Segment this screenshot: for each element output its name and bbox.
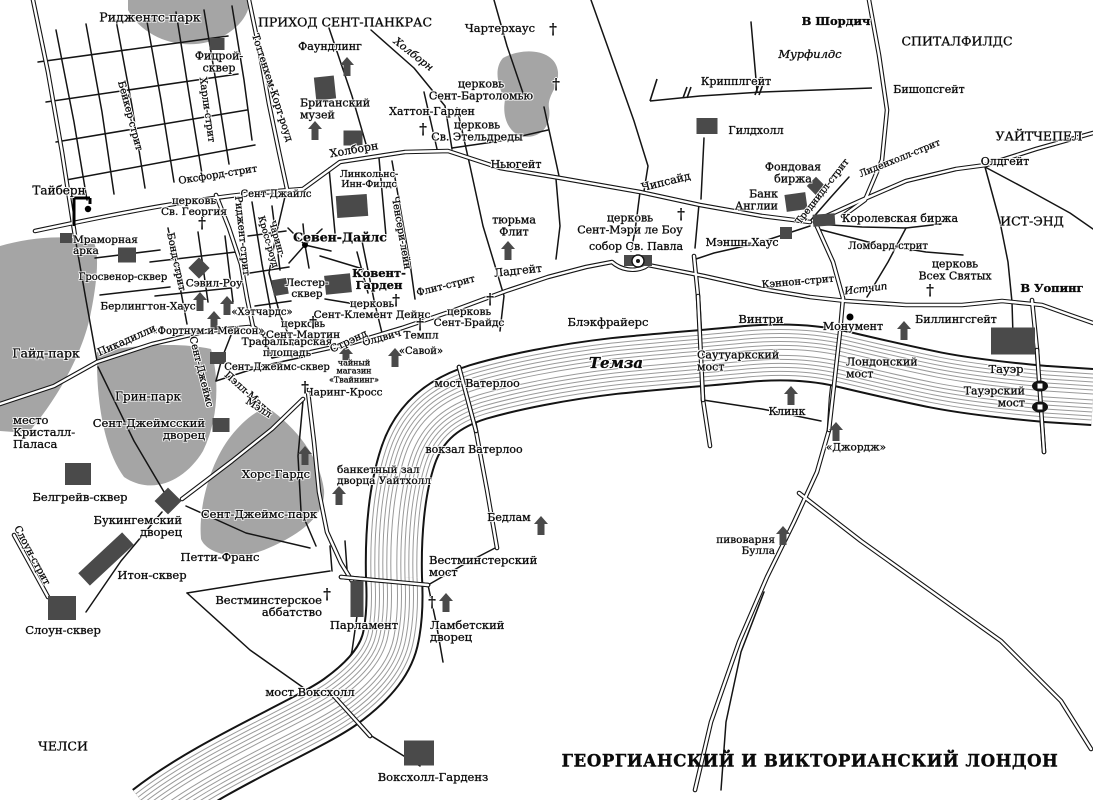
building-icon <box>784 192 807 212</box>
building-icon <box>65 463 91 485</box>
house-icon <box>897 321 911 340</box>
house-icon <box>339 346 353 365</box>
building-icon <box>344 131 363 146</box>
building-icon <box>188 257 209 278</box>
monument-dot-icon <box>302 242 308 248</box>
tyburn-gallows-icon <box>85 206 91 212</box>
house-icon <box>308 121 322 140</box>
house-icon <box>207 311 221 330</box>
map-graphics <box>0 0 1093 800</box>
building-icon <box>155 488 182 515</box>
building-icon <box>213 418 230 432</box>
house-icon <box>439 593 453 612</box>
house-icon <box>501 241 515 260</box>
smithfield-shape <box>497 51 558 136</box>
hyde-park-shape <box>0 237 97 433</box>
building-icon <box>78 532 133 585</box>
building-icon <box>807 177 825 195</box>
st-pauls-icon <box>636 259 640 263</box>
building-icon <box>118 248 136 263</box>
tower-bridge-tower-icon <box>1038 384 1043 389</box>
building-icon <box>48 596 76 620</box>
building-icon <box>991 328 1035 355</box>
house-icon <box>784 386 798 405</box>
house-icon <box>332 486 346 505</box>
building-icon <box>813 213 836 227</box>
building-icon <box>271 278 289 296</box>
monument-dot-icon <box>847 314 854 321</box>
green-park-shape <box>97 345 216 485</box>
building-icon <box>697 118 718 134</box>
building-icon <box>351 581 364 617</box>
house-icon <box>388 348 402 367</box>
tower-bridge-tower-icon <box>1038 405 1043 410</box>
building-icon <box>324 273 352 295</box>
building-icon <box>60 233 72 243</box>
building-icon <box>210 352 226 364</box>
map-canvas: ГЕОРГИАНСКИЙ И ВИКТОРИАНСКИЙ ЛОНДОН Ридж… <box>0 0 1093 800</box>
building-icon <box>404 741 434 766</box>
building-icon <box>780 227 792 239</box>
house-icon <box>193 292 207 311</box>
building-icon <box>210 38 225 50</box>
building-icon <box>336 194 368 218</box>
house-icon <box>534 516 548 535</box>
building-icon <box>314 76 336 101</box>
